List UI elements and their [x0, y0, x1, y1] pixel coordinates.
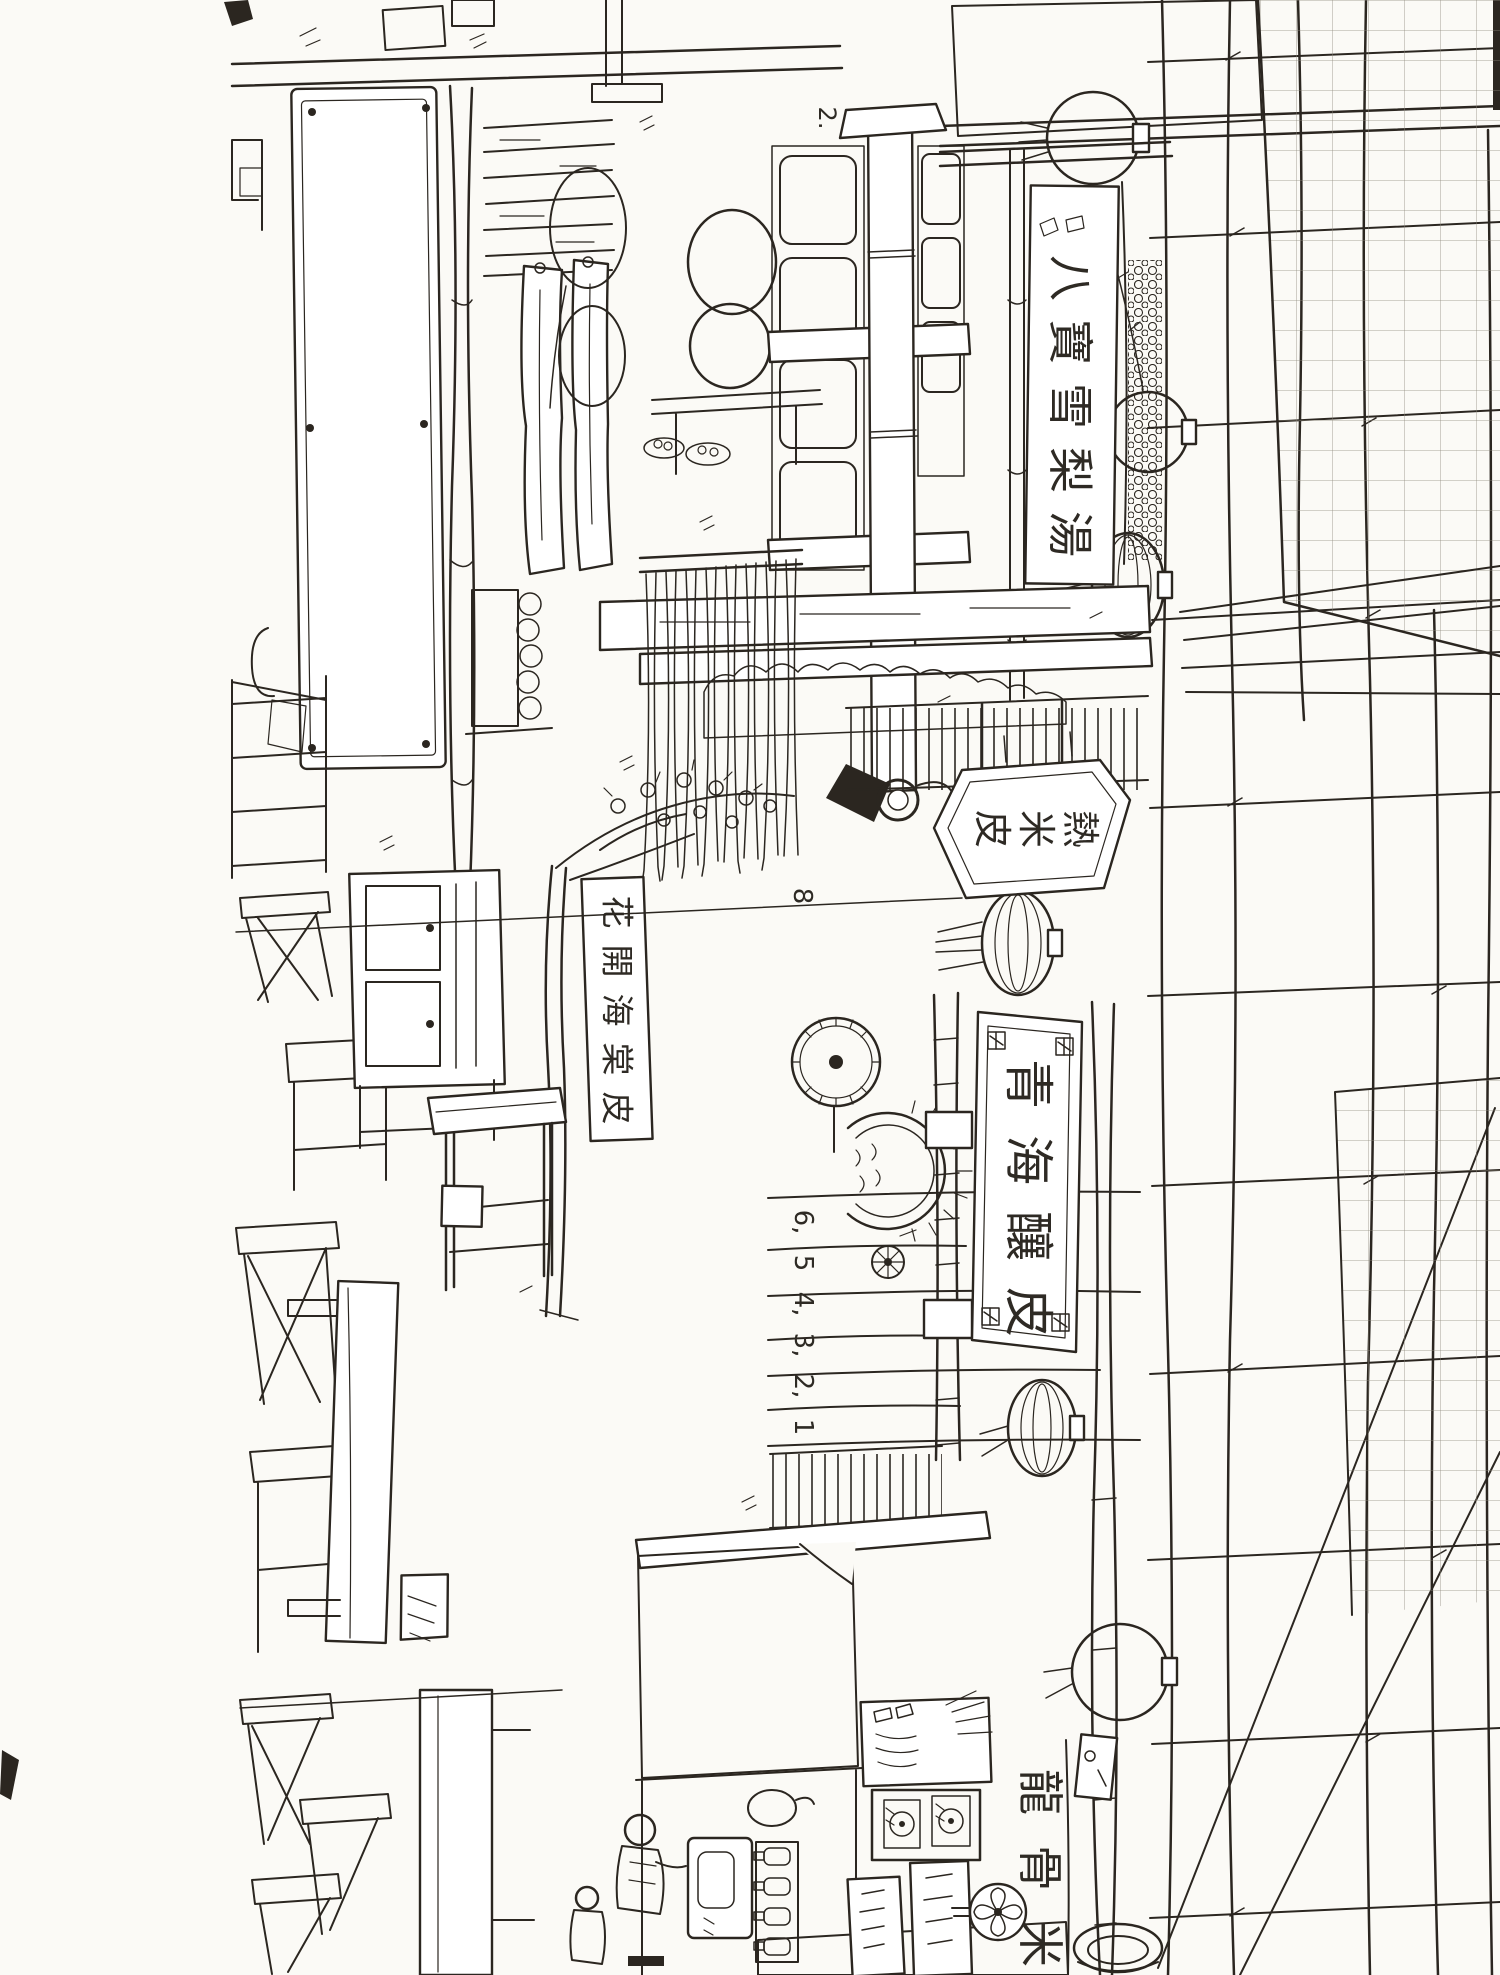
sideways-glyph: 2.	[813, 107, 841, 130]
menu-board	[861, 1691, 992, 1786]
sideways-glyph: 海	[999, 1135, 1057, 1185]
sideways-glyph: 骨	[1013, 1845, 1067, 1891]
bottom-right-tarp	[1335, 1078, 1500, 1615]
sideways-glyph: 雪	[1043, 383, 1097, 429]
sideways-glyph: 龍	[1013, 1769, 1067, 1815]
sideways-glyph: 6,	[788, 1210, 818, 1235]
sign-top-banner-text: 八寶雪梨湯	[1043, 255, 1097, 557]
fridge-box	[688, 1838, 752, 1938]
sideways-glyph: 皮	[999, 1287, 1057, 1337]
street-beams	[600, 586, 1152, 684]
sideways-glyph: 釀	[999, 1211, 1057, 1261]
sideways-glyph: 米	[1013, 1921, 1067, 1967]
sideways-glyph: 皮	[970, 810, 1014, 848]
ink-drawing: 八寶雪梨湯 熱米皮 8 2. 花開海棠皮	[0, 0, 1500, 1975]
sideways-glyph: 八	[1043, 255, 1097, 301]
curtain-number: 8	[787, 888, 817, 905]
sideways-glyph: 5	[788, 1255, 818, 1272]
sign-hot-mipi-text: 熱米皮	[970, 810, 1102, 848]
sideways-glyph: 皮	[598, 1092, 637, 1125]
sideways-glyph: 棠	[598, 1043, 637, 1076]
sideways-glyph: 3,	[788, 1333, 818, 1358]
sideways-glyph: 4,	[788, 1292, 818, 1317]
sign-bottom-text: 龍骨米	[1013, 1769, 1067, 1967]
sideways-glyph: 梨	[1043, 447, 1097, 493]
sideways-glyph: 寶	[1043, 319, 1097, 365]
sideways-glyph: 開	[598, 945, 637, 978]
small-wheel	[872, 1246, 904, 1278]
small-price-plaque	[1075, 1734, 1117, 1799]
sideways-glyph: 2,	[788, 1374, 818, 1399]
sideways-glyph: 米	[1014, 810, 1058, 848]
sideways-glyph: 熱	[1058, 810, 1102, 848]
sideways-glyph: 1	[788, 1419, 818, 1436]
sideways-glyph: 花	[598, 896, 637, 929]
beam-number: 2.	[813, 107, 841, 130]
sideways-glyph: 8	[787, 888, 817, 905]
sketch-page: 八寶雪梨湯 熱米皮 8 2. 花開海棠皮	[0, 0, 1500, 1975]
sideways-glyph: 湯	[1043, 511, 1097, 557]
sideways-glyph: 青	[999, 1059, 1057, 1109]
sideways-glyph: 海	[598, 994, 637, 1027]
